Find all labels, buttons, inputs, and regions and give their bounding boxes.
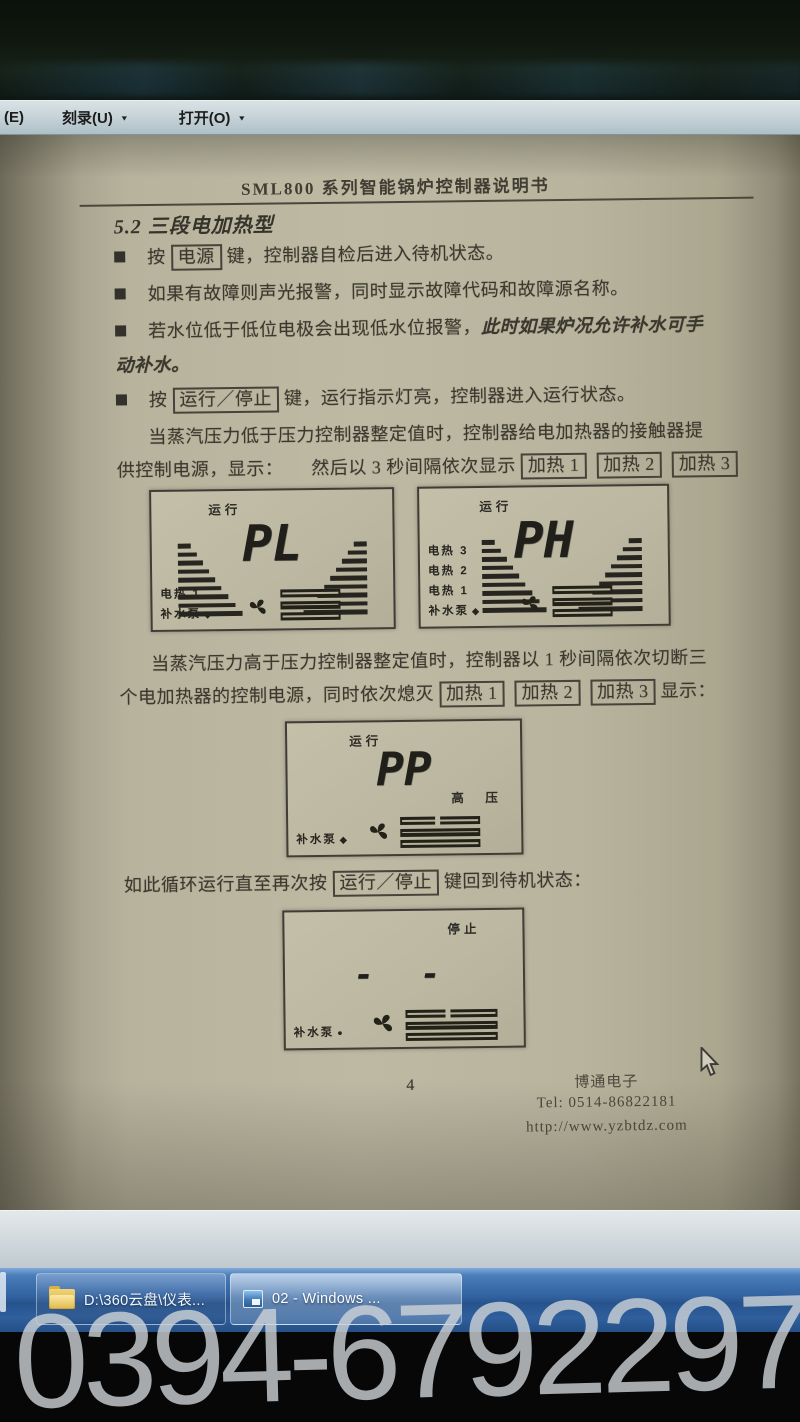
lcd-display-stop: 停止 - - 补水泵●	[282, 908, 526, 1051]
heater2-label: 电热 2	[428, 562, 481, 579]
fan-icon	[364, 818, 392, 846]
heat3-key-box: 加热 3	[672, 451, 738, 477]
heater3-label: 电热 3	[428, 542, 481, 559]
bullet-power: 按电源键，控制器自检后进入待机状态。	[114, 239, 504, 271]
bullet-marker	[116, 394, 127, 405]
bullet-fault: 如果有故障则声光报警，同时显示故障代码和故障源名称。	[115, 274, 629, 306]
pump-label: 补水泵◆	[296, 831, 349, 848]
bullet-marker	[115, 288, 126, 299]
heat2-key-box: 加热 2	[596, 452, 662, 478]
pump-label: 补水泵●	[294, 1024, 345, 1041]
photo-viewer-canvas: SML800 系列智能锅炉控制器说明书 5.2 三段电加热型 按电源键，控制器自…	[0, 135, 800, 1210]
paragraph-low-pressure-line1: 当蒸汽压力低于压力控制器整定值时，控制器给电加热器的接触器提	[148, 416, 703, 449]
run-stop-key-box: 运行／停止	[332, 870, 439, 897]
heater1-label: 电热 1	[428, 582, 481, 599]
paragraph-loop: 如此循环运行直至再次按运行／停止键回到待机状态：	[124, 866, 592, 899]
heater-icon	[552, 585, 612, 617]
pump-label: 补水泵◆	[160, 605, 213, 622]
taskbar-button-photo-viewer-label: 02 - Windows ...	[272, 1291, 381, 1307]
footer-tel: Tel: 0514-86822181	[476, 1093, 736, 1113]
section-title: 5.2 三段电加热型	[114, 209, 274, 240]
heater1-label: 电热 1	[160, 585, 213, 602]
bullet-low-water-line2: 动补水。	[115, 351, 189, 378]
document-page: SML800 系列智能锅炉控制器说明书 5.2 三段电加热型 按电源键，控制器自…	[0, 135, 800, 1210]
lcd-value-dashes: - -	[285, 954, 523, 995]
taskbar-button-folder-label: D:\360云盘\仪表...	[84, 1289, 205, 1310]
menu-item-e[interactable]: (E)	[0, 101, 34, 134]
heater-icon	[280, 589, 340, 621]
taskbar: D:\360云盘\仪表... 02 - Windows ...	[0, 1268, 800, 1332]
heat3-key-box: 加热 3	[590, 679, 656, 705]
pump-label: 补水泵◆	[428, 602, 481, 619]
lcd-display-pp: 运行 PP 高 压 补水泵◆	[285, 719, 524, 858]
fan-icon	[244, 595, 270, 621]
fan-icon	[516, 591, 542, 617]
heater-icon	[400, 816, 480, 848]
taskbar-button-folder[interactable]: D:\360云盘\仪表...	[36, 1273, 226, 1325]
bezel-reflection	[0, 62, 800, 96]
menu-item-open[interactable]: 打开(O) ▼	[169, 101, 257, 134]
footer-url: http://www.yzbtdz.com	[477, 1117, 737, 1137]
heat1-key-box: 加热 1	[521, 453, 587, 479]
screen: (E) 刻录(U) ▼ 打开(O) ▼ SML800 系列智能锅炉控制器说明书 …	[0, 0, 800, 1422]
mouse-cursor-icon	[698, 1047, 720, 1077]
lcd-status-stop: 停止	[447, 918, 480, 937]
heat2-key-box: 加热 2	[514, 680, 580, 706]
photo-viewer-icon	[243, 1290, 263, 1308]
bullet-low-water: 若水位低于低位电极会出现低水位报警，此时如果炉况允许补水可手	[115, 310, 703, 343]
menu-item-open-label: 打开(O)	[179, 107, 231, 128]
taskbar-button-photo-viewer[interactable]: 02 - Windows ...	[230, 1273, 462, 1325]
bullet-marker	[114, 251, 125, 262]
lcd-display-ph: 运行 PH 补水泵◆ 电热 1 电热 2 电热 3	[417, 484, 671, 629]
menu-item-e-label: (E)	[4, 109, 24, 126]
menu-item-burn-label: 刻录(U)	[62, 107, 113, 128]
folder-icon	[49, 1289, 75, 1309]
heater-icon	[405, 1009, 497, 1041]
monitor-bezel-bottom	[0, 1332, 800, 1422]
menubar: (E) 刻录(U) ▼ 打开(O) ▼	[0, 100, 800, 135]
power-key-box: 电源	[171, 244, 222, 270]
paragraph-high-pressure-line1: 当蒸汽压力高于压力控制器整定值时，控制器以 1 秒间隔依次切断三	[151, 643, 707, 676]
chevron-down-icon: ▼	[237, 114, 246, 122]
page-number: 4	[406, 1077, 415, 1095]
paragraph-high-pressure-line2: 个电加热器的控制电源，同时依次熄灭加热 1加热 2加热 3显示：	[119, 676, 716, 711]
bullet-marker	[115, 325, 126, 336]
high-pressure-label: 高 压	[451, 787, 507, 807]
menu-item-burn[interactable]: 刻录(U) ▼	[52, 101, 139, 134]
viewer-toolbar: ▼	[0, 1210, 800, 1268]
bullet-run-stop: 按运行／停止键，运行指示灯亮，控制器进入运行状态。	[116, 380, 636, 414]
heat1-key-box: 加热 1	[439, 681, 505, 707]
monitor-bezel	[0, 0, 800, 100]
taskbar-edge	[0, 1272, 6, 1312]
fan-icon	[367, 1009, 397, 1039]
run-stop-key-box: 运行／停止	[172, 386, 279, 413]
chevron-down-icon: ▼	[120, 114, 129, 122]
lcd-display-pl: 运行 PL 补水泵◆ 电热 1	[149, 487, 396, 632]
paragraph-low-pressure-line2: 供控制电源，显示：然后以 3 秒间隔依次显示加热 1加热 2加热 3	[117, 449, 743, 484]
